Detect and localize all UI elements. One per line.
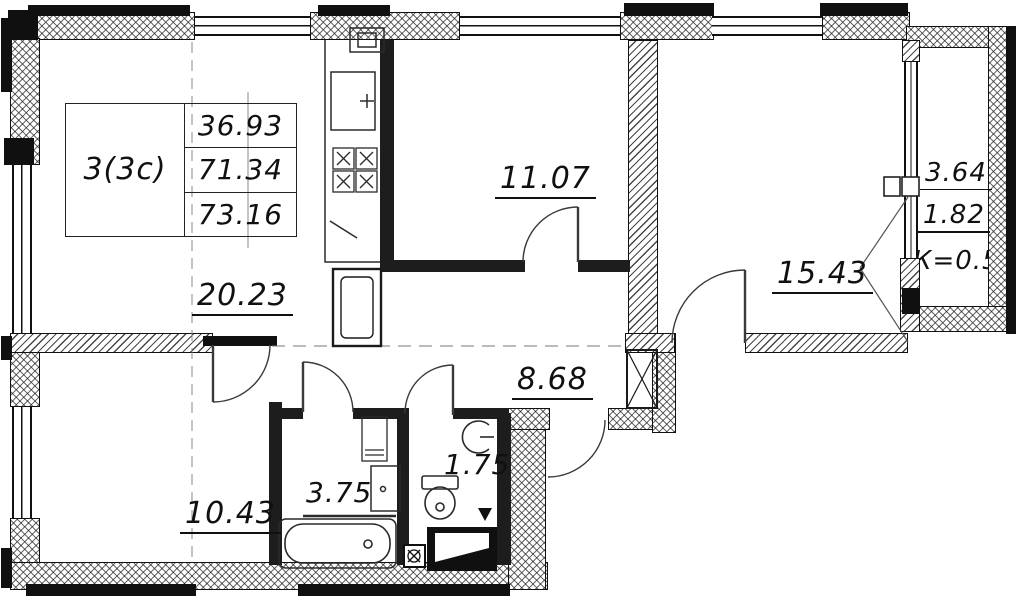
wall bbox=[10, 333, 213, 353]
apartment-area-value: 71.34 bbox=[185, 148, 296, 192]
room-label-bedroom-top: 11.07 bbox=[495, 163, 596, 199]
toilet-icon bbox=[422, 476, 458, 519]
wall-cap bbox=[28, 5, 190, 16]
total-area-value: 73.16 bbox=[185, 193, 296, 236]
apartment-type-label: 3(3с) bbox=[66, 104, 185, 236]
window bbox=[195, 16, 310, 36]
kitchen-sink-icon bbox=[331, 72, 375, 130]
wall-cap bbox=[1, 336, 12, 360]
wall bbox=[497, 413, 511, 565]
title-block: 3(3с) 36.93 71.34 73.16 bbox=[65, 103, 297, 237]
window bbox=[712, 16, 822, 36]
wall-cap bbox=[26, 584, 196, 596]
room-label-bedroom-right: 15.43 bbox=[772, 258, 873, 294]
living-area-value: 36.93 bbox=[185, 104, 296, 148]
room-label-living-kitchen: 20.23 bbox=[192, 280, 293, 316]
wall-cap bbox=[624, 3, 714, 16]
balcony-door bbox=[904, 182, 918, 258]
wall bbox=[397, 408, 409, 565]
wall-cap bbox=[298, 584, 510, 596]
loggia-wall bbox=[906, 306, 1014, 332]
room-label-wc: 1.75 bbox=[444, 450, 510, 479]
loggia-area-counted: 1.82 bbox=[918, 202, 990, 233]
room-label-hall: 8.68 bbox=[512, 364, 593, 400]
wall-cap bbox=[1006, 26, 1016, 334]
wall bbox=[625, 333, 675, 353]
wall-cap bbox=[1, 548, 12, 588]
wall-cap bbox=[8, 10, 38, 40]
window bbox=[904, 62, 918, 182]
water-heater-icon bbox=[362, 417, 387, 461]
loggia-coefficient: К=0.5 bbox=[913, 248, 1000, 275]
wall bbox=[745, 333, 908, 353]
wall bbox=[310, 12, 460, 40]
room-label-bathroom: 3.75 bbox=[306, 478, 372, 507]
fridge-icon bbox=[333, 269, 381, 346]
bathtub-icon bbox=[279, 516, 396, 568]
wall bbox=[269, 402, 282, 565]
wall bbox=[620, 12, 714, 40]
wall bbox=[269, 408, 303, 419]
room-label-bedroom-left: 10.43 bbox=[180, 498, 281, 534]
floor-plan-canvas: 3(3с) 36.93 71.34 73.16 20.23 11.07 15.4… bbox=[0, 0, 1019, 600]
door-header bbox=[203, 336, 277, 346]
wall bbox=[628, 40, 658, 335]
loggia-area-full: 3.64 bbox=[920, 160, 992, 190]
wall-cap bbox=[318, 5, 390, 16]
window bbox=[12, 407, 32, 518]
wall bbox=[822, 12, 910, 40]
washbasin-icon bbox=[371, 466, 400, 511]
wall bbox=[508, 408, 550, 430]
wall bbox=[508, 413, 546, 590]
stove-icon bbox=[333, 148, 377, 192]
wall-cap bbox=[1, 18, 12, 92]
kitchen-counter bbox=[325, 40, 380, 262]
window bbox=[12, 165, 32, 335]
kitchen-partition bbox=[380, 40, 394, 272]
wall-pier bbox=[902, 288, 920, 314]
wall-cap bbox=[4, 138, 34, 165]
wall bbox=[394, 260, 525, 272]
wall bbox=[578, 260, 630, 272]
wall-cap bbox=[820, 3, 908, 16]
wall bbox=[902, 40, 920, 62]
window bbox=[460, 16, 620, 36]
